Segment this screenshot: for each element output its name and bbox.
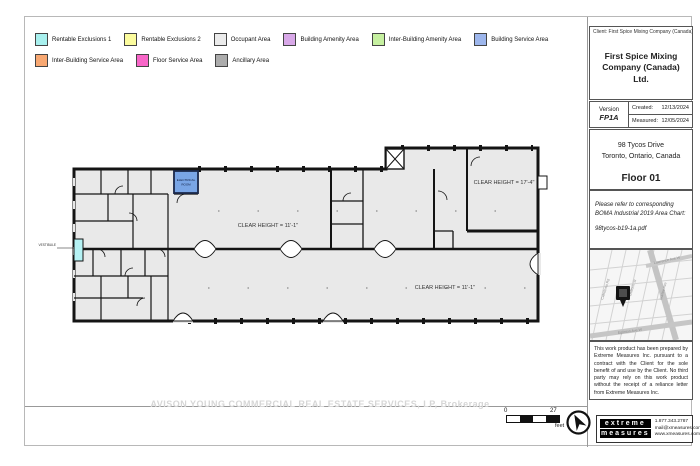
address-box: 98 Tycos Drive Toronto, Ontario, Canada … <box>589 129 693 190</box>
scale-end: 27 <box>550 408 557 414</box>
legend-swatch <box>214 33 227 46</box>
legend-swatch <box>372 33 385 46</box>
address-line1: 98 Tycos Drive <box>590 141 692 152</box>
client-title: First Spice Mixing Company (Canada) Ltd. <box>590 51 692 85</box>
version-box: Version FP1A Created: 12/13/2024 Measure… <box>589 101 693 128</box>
legend-label: Building Service Area <box>491 37 548 43</box>
note-line: Please refer to corresponding BOMA Indus… <box>595 201 687 218</box>
client-line: Client: First Spice Mixing Company (Cana… <box>590 27 692 35</box>
legend-item: Building Service Area <box>474 33 548 46</box>
legend-label: Occupant Area <box>231 37 271 43</box>
legend-label: Rentable Exclusions 1 <box>52 37 111 43</box>
brokerage-watermark: AVISON YOUNG COMMERCIAL REAL ESTATE SERV… <box>85 399 555 409</box>
logo-line-2: measures <box>600 429 651 438</box>
company-logo-box: extreme measures 1.877.343.2787 mail@xme… <box>596 415 693 443</box>
legend-item: Inter-Building Service Area <box>35 54 123 67</box>
legend-label: Inter-Building Service Area <box>52 58 123 64</box>
floor-plan: ELECTRICAL ROOM VESTIBULE CLEAR HEIGHT =… <box>33 136 583 336</box>
legend-item: Inter-Building Amenity Area <box>372 33 461 46</box>
measured-label: Measured: <box>632 118 658 124</box>
legend-row-1: Rentable Exclusions 1 Rentable Exclusion… <box>35 33 561 46</box>
legend-label: Rentable Exclusions 2 <box>141 37 200 43</box>
legend-swatch <box>136 54 149 67</box>
building-outline <box>74 148 538 321</box>
created-value: 12/13/2024 <box>661 105 689 111</box>
right-exit-door <box>538 176 547 189</box>
titleblock-divider <box>587 17 588 447</box>
measured-value: 12/05/2024 <box>661 118 689 124</box>
electrical-room-label-1: ELECTRICAL <box>177 178 196 182</box>
client-title-box: Client: First Spice Mixing Company (Cana… <box>589 26 693 100</box>
address-line2: Toronto, Ontario, Canada <box>590 152 692 163</box>
logo-line-1: extreme <box>600 419 651 428</box>
clear-height-label-lower: CLEAR HEIGHT = 11'-1" <box>415 285 475 291</box>
legend-label: Building Amenity Area <box>300 37 358 43</box>
legend-item: Rentable Exclusions 2 <box>124 33 200 46</box>
created-label: Created: <box>632 105 653 111</box>
scale-unit: feet <box>555 423 564 429</box>
clear-height-label-main: CLEAR HEIGHT = 11'-1" <box>238 223 298 229</box>
version-value: FP1A <box>599 113 618 122</box>
location-map-box: Caledonia Rd Dufferin St Lawrence Ave W … <box>589 249 693 341</box>
contact-web: www.xmeasures.com <box>655 432 700 438</box>
scale-bar <box>506 415 560 423</box>
note-box: Please refer to corresponding BOMA Indus… <box>589 190 693 249</box>
note-filename: 98tycos-b19-1a.pdf <box>595 225 687 234</box>
drawing-sheet: Rentable Exclusions 1 Rentable Exclusion… <box>24 16 692 446</box>
legend-swatch <box>124 33 137 46</box>
legend-item: Floor Service Area <box>136 54 202 67</box>
location-map: Caledonia Rd Dufferin St Lawrence Ave W … <box>590 250 692 340</box>
floor-title: Floor 01 <box>590 171 692 186</box>
legend-swatch <box>474 33 487 46</box>
legend-item: Ancillary Area <box>215 54 269 67</box>
legend-item: Occupant Area <box>214 33 271 46</box>
legend-item: Rentable Exclusions 1 <box>35 33 111 46</box>
scale-start: 0 <box>504 408 507 414</box>
extreme-measures-logo: extreme measures <box>600 419 651 439</box>
disclaimer-box: This work product has been prepared by E… <box>589 341 693 400</box>
north-arrow-icon <box>565 409 592 436</box>
legend-label: Ancillary Area <box>232 58 269 64</box>
clear-height-label-upper-right: CLEAR HEIGHT = 17'-4" <box>474 180 535 186</box>
electrical-room-label-2: ROOM <box>181 183 191 187</box>
legend-swatch <box>215 54 228 67</box>
legend-swatch <box>283 33 296 46</box>
legend-row-2: Inter-Building Service Area Floor Servic… <box>35 54 282 67</box>
vestibule-label: VESTIBULE <box>38 243 56 247</box>
legend-item: Building Amenity Area <box>283 33 358 46</box>
legend-swatch <box>35 54 48 67</box>
vestibule-area <box>74 239 83 261</box>
legend-label: Floor Service Area <box>153 58 202 64</box>
legend-swatch <box>35 33 48 46</box>
legend-label: Inter-Building Amenity Area <box>389 37 461 43</box>
disclaimer-text: This work product has been prepared by E… <box>590 342 692 400</box>
